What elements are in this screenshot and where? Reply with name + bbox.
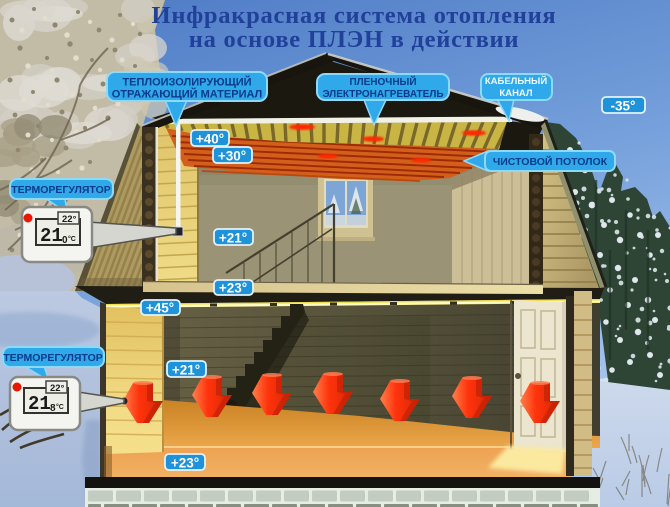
- svg-text:°C: °C: [68, 235, 76, 243]
- svg-text:+23°: +23°: [171, 456, 199, 471]
- svg-text:+45°: +45°: [146, 301, 174, 316]
- svg-text:°C: °C: [56, 403, 64, 411]
- svg-text:21: 21: [28, 393, 51, 415]
- svg-text:+30°: +30°: [218, 149, 246, 164]
- svg-text:22°: 22°: [62, 214, 77, 225]
- svg-text:22°: 22°: [50, 383, 65, 394]
- svg-text:21: 21: [40, 225, 63, 247]
- svg-text:Инфракрасная система отопления: Инфракрасная система отопления: [152, 2, 557, 29]
- svg-text:ПЛЕНОЧНЫЙ: ПЛЕНОЧНЫЙ: [349, 75, 416, 88]
- svg-text:+21°: +21°: [172, 363, 200, 378]
- svg-text:+21°: +21°: [219, 231, 247, 246]
- svg-text:на основе ПЛЭН в действии: на основе ПЛЭН в действии: [189, 26, 520, 53]
- svg-text:ЭЛЕКТРОНАГРЕВАТЕЛЬ: ЭЛЕКТРОНАГРЕВАТЕЛЬ: [322, 89, 443, 100]
- svg-text:ТЕРМОРЕГУЛЯТОР: ТЕРМОРЕГУЛЯТОР: [3, 352, 103, 364]
- svg-text:+40°: +40°: [196, 132, 224, 147]
- svg-text:ЧИСТОВОЙ ПОТОЛОК: ЧИСТОВОЙ ПОТОЛОК: [493, 155, 608, 168]
- svg-text:ТЕПЛОИЗОЛИРУЮЩИЙ: ТЕПЛОИЗОЛИРУЮЩИЙ: [122, 76, 251, 89]
- svg-text:ОТРАЖАЮЩИЙ МАТЕРИАЛ: ОТРАЖАЮЩИЙ МАТЕРИАЛ: [112, 88, 263, 101]
- svg-text:-35°: -35°: [611, 99, 636, 114]
- svg-text:КАБЕЛЬНЫЙ: КАБЕЛЬНЫЙ: [485, 75, 547, 87]
- svg-text:ТЕРМОРЕГУЛЯТОР: ТЕРМОРЕГУЛЯТОР: [11, 184, 111, 196]
- svg-text:КАНАЛ: КАНАЛ: [499, 88, 532, 99]
- svg-text:+23°: +23°: [219, 281, 247, 296]
